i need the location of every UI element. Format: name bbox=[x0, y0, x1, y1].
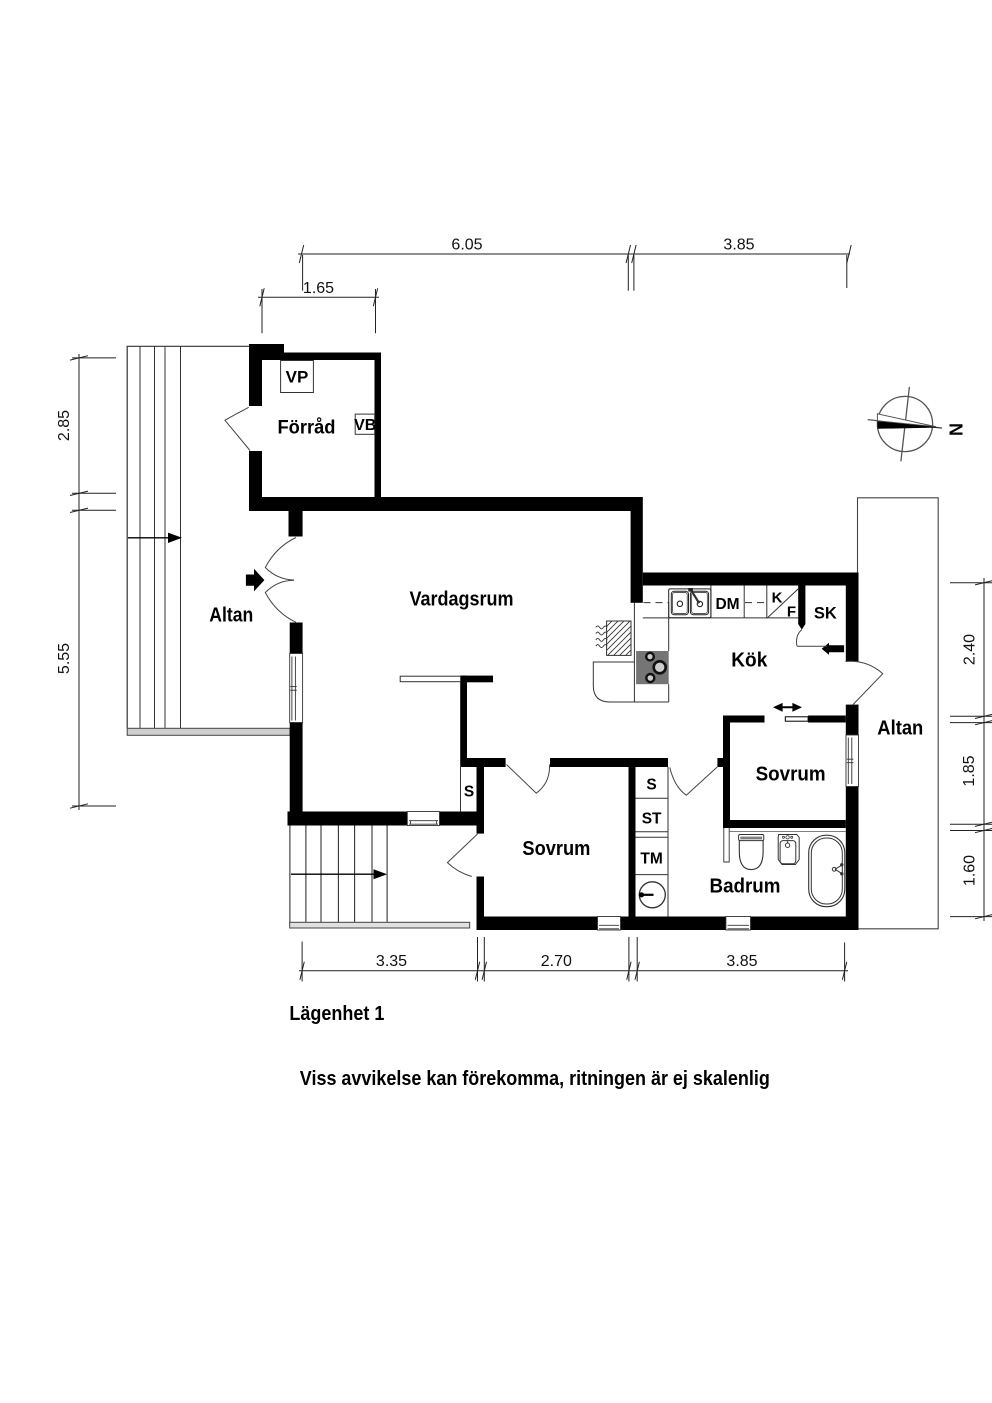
svg-text:Lägenhet 1: Lägenhet 1 bbox=[289, 1003, 384, 1025]
svg-text:1.60: 1.60 bbox=[962, 855, 979, 886]
svg-text:N: N bbox=[945, 423, 965, 436]
svg-text:Sovrum: Sovrum bbox=[756, 764, 826, 786]
svg-text:F: F bbox=[787, 604, 796, 621]
svg-text:Vardagsrum: Vardagsrum bbox=[410, 589, 514, 611]
svg-text:2.40: 2.40 bbox=[962, 634, 979, 665]
svg-text:3.85: 3.85 bbox=[723, 237, 754, 254]
svg-text:2.85: 2.85 bbox=[56, 410, 73, 441]
svg-text:Förråd: Förråd bbox=[278, 416, 336, 439]
svg-text:Badrum: Badrum bbox=[710, 875, 781, 898]
svg-text:5.55: 5.55 bbox=[56, 643, 73, 674]
svg-text:2.70: 2.70 bbox=[541, 953, 572, 970]
svg-text:3.85: 3.85 bbox=[726, 953, 757, 970]
svg-text:VP: VP bbox=[286, 368, 309, 387]
svg-text:VB: VB bbox=[354, 417, 376, 434]
svg-text:K: K bbox=[772, 590, 783, 607]
svg-text:Altan: Altan bbox=[877, 718, 923, 740]
svg-text:Altan: Altan bbox=[209, 605, 253, 627]
svg-text:S: S bbox=[464, 784, 474, 801]
svg-text:Sovrum: Sovrum bbox=[522, 838, 590, 860]
svg-text:1.65: 1.65 bbox=[303, 280, 334, 297]
svg-text:Viss avvikelse kan förekomma,: Viss avvikelse kan förekomma, ritningen … bbox=[300, 1068, 770, 1090]
svg-text:S: S bbox=[646, 777, 656, 794]
svg-text:6.05: 6.05 bbox=[451, 237, 482, 254]
svg-text:ST: ST bbox=[642, 811, 662, 828]
svg-text:SK: SK bbox=[814, 605, 837, 623]
svg-text:TM: TM bbox=[640, 851, 662, 868]
svg-text:Kök: Kök bbox=[731, 650, 768, 672]
svg-text:DM: DM bbox=[715, 596, 739, 613]
svg-text:3.35: 3.35 bbox=[376, 953, 407, 970]
svg-text:1.85: 1.85 bbox=[961, 755, 978, 786]
